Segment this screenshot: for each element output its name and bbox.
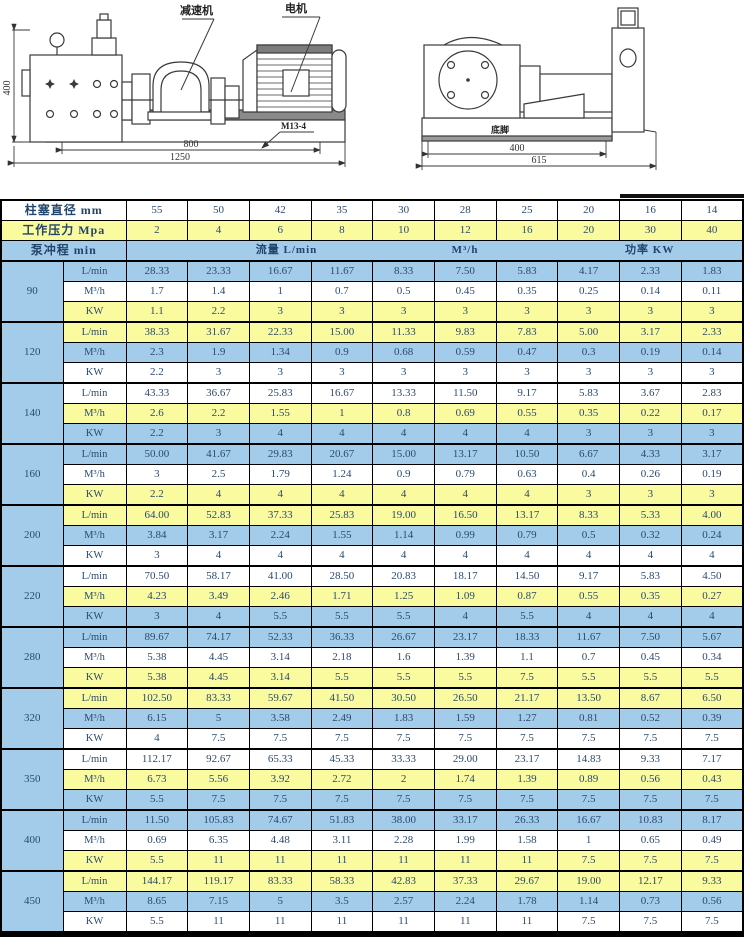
pressure-header-label: 工作压力 Mpa bbox=[1, 221, 126, 241]
value-cell: 1.6 bbox=[373, 648, 435, 668]
value-cell: 4.23 bbox=[126, 587, 188, 607]
value-cell: 7.5 bbox=[620, 912, 682, 935]
pressure-header-row: 工作压力 Mpa 2468101216203040 bbox=[1, 221, 743, 241]
pressure-value-cell: 20 bbox=[558, 221, 620, 241]
value-cell: 0.65 bbox=[620, 831, 682, 851]
value-cell: 3.11 bbox=[311, 831, 373, 851]
value-cell: 1.74 bbox=[434, 770, 496, 790]
table-row: 160L/min50.0041.6729.8320.6715.0013.1710… bbox=[1, 444, 743, 465]
value-cell: 6.15 bbox=[126, 709, 188, 729]
value-cell: 4 bbox=[681, 607, 743, 628]
value-cell: 15.00 bbox=[311, 322, 373, 343]
value-cell: 1.09 bbox=[434, 587, 496, 607]
value-cell: 11.67 bbox=[558, 627, 620, 648]
table-row: M³/h8.657.1553.52.572.241.781.140.730.56 bbox=[1, 892, 743, 912]
pressure-value-cell: 12 bbox=[434, 221, 496, 241]
value-cell: 4 bbox=[496, 424, 558, 445]
value-cell: 0.45 bbox=[620, 648, 682, 668]
value-cell: 0.39 bbox=[681, 709, 743, 729]
value-cell: 2.83 bbox=[681, 383, 743, 404]
value-cell: 11 bbox=[311, 912, 373, 935]
value-cell: 5.5 bbox=[126, 912, 188, 935]
value-cell: 0.27 bbox=[681, 587, 743, 607]
diameter-value-cell: 28 bbox=[434, 200, 496, 221]
value-cell: 2.46 bbox=[249, 587, 311, 607]
value-cell: 3 bbox=[496, 302, 558, 323]
row-unit-label: KW bbox=[63, 790, 126, 811]
value-cell: 11 bbox=[434, 912, 496, 935]
value-cell: 7.5 bbox=[434, 790, 496, 811]
value-cell: 2 bbox=[373, 770, 435, 790]
value-cell: 2.2 bbox=[126, 424, 188, 445]
row-unit-label: M³/h bbox=[63, 282, 126, 302]
dim-side-615: 615 bbox=[532, 155, 547, 166]
table-row: KW5.384.453.145.55.55.57.55.55.55.5 bbox=[1, 668, 743, 689]
table-row: M³/h0.696.354.483.112.281.991.5810.650.4… bbox=[1, 831, 743, 851]
value-cell: 7.5 bbox=[249, 790, 311, 811]
value-cell: 3.17 bbox=[620, 322, 682, 343]
value-cell: 0.7 bbox=[558, 648, 620, 668]
pressure-value-cell: 30 bbox=[620, 221, 682, 241]
value-cell: 3 bbox=[558, 363, 620, 384]
value-cell: 4.48 bbox=[249, 831, 311, 851]
value-cell: 11.50 bbox=[126, 810, 188, 831]
value-cell: 3 bbox=[681, 363, 743, 384]
value-cell: 83.33 bbox=[188, 688, 250, 709]
value-cell: 14.50 bbox=[496, 566, 558, 587]
value-cell: 7.5 bbox=[496, 729, 558, 750]
row-unit-label: M³/h bbox=[63, 526, 126, 546]
value-cell: 0.9 bbox=[311, 343, 373, 363]
value-cell: 26.33 bbox=[496, 810, 558, 831]
table-row: 220L/min70.5058.1741.0028.5020.8318.1714… bbox=[1, 566, 743, 587]
value-cell: 23.17 bbox=[496, 749, 558, 770]
value-cell: 3 bbox=[311, 302, 373, 323]
value-cell: 11 bbox=[496, 912, 558, 935]
value-cell: 29.00 bbox=[434, 749, 496, 770]
value-cell: 37.33 bbox=[434, 871, 496, 892]
value-cell: 22.33 bbox=[249, 322, 311, 343]
value-cell: 1.25 bbox=[373, 587, 435, 607]
pressure-value-cell: 16 bbox=[496, 221, 558, 241]
pressure-value-cell: 4 bbox=[188, 221, 250, 241]
value-cell: 16.67 bbox=[249, 261, 311, 282]
value-cell: 8.65 bbox=[126, 892, 188, 912]
value-cell: 4 bbox=[373, 485, 435, 506]
value-cell: 13.33 bbox=[373, 383, 435, 404]
pressure-value-cell: 2 bbox=[126, 221, 188, 241]
value-cell: 7.5 bbox=[434, 729, 496, 750]
value-cell: 3.5 bbox=[311, 892, 373, 912]
row-unit-label: L/min bbox=[63, 261, 126, 282]
value-cell: 0.32 bbox=[620, 526, 682, 546]
value-cell: 8.33 bbox=[373, 261, 435, 282]
value-cell: 42.83 bbox=[373, 871, 435, 892]
stroke-group-label: 320 bbox=[1, 688, 63, 749]
value-cell: 7.5 bbox=[681, 851, 743, 872]
value-cell: 0.56 bbox=[681, 892, 743, 912]
row-unit-label: L/min bbox=[63, 505, 126, 526]
value-cell: 0.52 bbox=[620, 709, 682, 729]
value-cell: 7.5 bbox=[249, 729, 311, 750]
row-unit-label: L/min bbox=[63, 871, 126, 892]
table-row: 400L/min11.50105.8374.6751.8338.0033.172… bbox=[1, 810, 743, 831]
value-cell: 7.5 bbox=[620, 790, 682, 811]
value-cell: 0.87 bbox=[496, 587, 558, 607]
diameter-value-cell: 20 bbox=[558, 200, 620, 221]
value-cell: 7.17 bbox=[681, 749, 743, 770]
power-label: 功率 KW bbox=[625, 241, 674, 260]
value-cell: 4.45 bbox=[188, 648, 250, 668]
value-cell: 4 bbox=[558, 607, 620, 628]
value-cell: 2.2 bbox=[126, 363, 188, 384]
value-cell: 5.00 bbox=[558, 322, 620, 343]
row-unit-label: L/min bbox=[63, 688, 126, 709]
value-cell: 4 bbox=[249, 485, 311, 506]
pump-side-view bbox=[422, 8, 644, 141]
value-cell: 5.5 bbox=[311, 607, 373, 628]
value-cell: 7.50 bbox=[434, 261, 496, 282]
value-cell: 4 bbox=[188, 546, 250, 567]
value-cell: 41.00 bbox=[249, 566, 311, 587]
value-cell: 4.45 bbox=[188, 668, 250, 689]
row-unit-label: L/min bbox=[63, 566, 126, 587]
value-cell: 4.33 bbox=[620, 444, 682, 465]
value-cell: 4 bbox=[311, 424, 373, 445]
value-cell: 8.67 bbox=[620, 688, 682, 709]
row-unit-label: L/min bbox=[63, 444, 126, 465]
diameter-value-cell: 50 bbox=[188, 200, 250, 221]
row-unit-label: KW bbox=[63, 546, 126, 567]
value-cell: 1.83 bbox=[681, 261, 743, 282]
value-cell: 43.33 bbox=[126, 383, 188, 404]
value-cell: 19.00 bbox=[558, 871, 620, 892]
table-row: KW345.55.55.545.5444 bbox=[1, 607, 743, 628]
value-cell: 11 bbox=[249, 912, 311, 935]
value-cell: 3 bbox=[188, 363, 250, 384]
value-cell: 23.17 bbox=[434, 627, 496, 648]
value-cell: 50.00 bbox=[126, 444, 188, 465]
value-cell: 38.33 bbox=[126, 322, 188, 343]
motor-label: 电机 bbox=[285, 1, 307, 15]
value-cell: 5.83 bbox=[496, 261, 558, 282]
value-cell: 0.56 bbox=[620, 770, 682, 790]
value-cell: 0.19 bbox=[620, 343, 682, 363]
row-unit-label: KW bbox=[63, 851, 126, 872]
diameter-value-cell: 25 bbox=[496, 200, 558, 221]
stroke-header-label: 泵冲程 min bbox=[1, 241, 126, 262]
value-cell: 4 bbox=[558, 546, 620, 567]
value-cell: 3.14 bbox=[249, 648, 311, 668]
value-cell: 2.49 bbox=[311, 709, 373, 729]
value-cell: 7.50 bbox=[620, 627, 682, 648]
table-row: 350L/min112.1792.6765.3345.3333.3329.002… bbox=[1, 749, 743, 770]
value-cell: 0.47 bbox=[496, 343, 558, 363]
value-cell: 7.5 bbox=[681, 729, 743, 750]
value-cell: 5.5 bbox=[373, 607, 435, 628]
value-cell: 11 bbox=[373, 851, 435, 872]
value-cell: 26.50 bbox=[434, 688, 496, 709]
value-cell: 1.55 bbox=[311, 526, 373, 546]
value-cell: 2.24 bbox=[249, 526, 311, 546]
value-cell: 5 bbox=[249, 892, 311, 912]
value-cell: 5.5 bbox=[558, 668, 620, 689]
value-cell: 9.17 bbox=[496, 383, 558, 404]
value-cell: 3.17 bbox=[681, 444, 743, 465]
value-cell: 7.5 bbox=[188, 729, 250, 750]
value-cell: 0.79 bbox=[434, 465, 496, 485]
value-cell: 28.50 bbox=[311, 566, 373, 587]
row-unit-label: KW bbox=[63, 607, 126, 628]
value-cell: 9.83 bbox=[434, 322, 496, 343]
diameter-value-cell: 42 bbox=[249, 200, 311, 221]
row-unit-label: M³/h bbox=[63, 831, 126, 851]
value-cell: 2.18 bbox=[311, 648, 373, 668]
flow-m3h-label: M³/h bbox=[452, 241, 479, 260]
value-cell: 4 bbox=[496, 546, 558, 567]
value-cell: 0.73 bbox=[620, 892, 682, 912]
value-cell: 31.67 bbox=[188, 322, 250, 343]
value-cell: 3 bbox=[311, 363, 373, 384]
row-unit-label: M³/h bbox=[63, 587, 126, 607]
value-cell: 0.35 bbox=[496, 282, 558, 302]
reducer-label: 减速机 bbox=[180, 3, 213, 17]
value-cell: 11.50 bbox=[434, 383, 496, 404]
value-cell: 0.49 bbox=[681, 831, 743, 851]
value-cell: 1.34 bbox=[249, 343, 311, 363]
row-unit-label: L/min bbox=[63, 810, 126, 831]
spec-table-body: 90L/min28.3323.3316.6711.678.337.505.834… bbox=[1, 261, 743, 934]
value-cell: 4 bbox=[249, 546, 311, 567]
value-cell: 7.5 bbox=[496, 790, 558, 811]
value-cell: 8.17 bbox=[681, 810, 743, 831]
value-cell: 4 bbox=[620, 607, 682, 628]
value-cell: 1.14 bbox=[558, 892, 620, 912]
row-unit-label: L/min bbox=[63, 749, 126, 770]
table-row: M³/h32.51.791.240.90.790.630.40.260.19 bbox=[1, 465, 743, 485]
dim-base-800: 800 bbox=[184, 139, 199, 150]
value-cell: 4 bbox=[434, 424, 496, 445]
diameter-value-cell: 35 bbox=[311, 200, 373, 221]
value-cell: 2.2 bbox=[188, 404, 250, 424]
value-cell: 4 bbox=[620, 546, 682, 567]
value-cell: 5.56 bbox=[188, 770, 250, 790]
value-cell: 2.5 bbox=[188, 465, 250, 485]
value-cell: 13.17 bbox=[434, 444, 496, 465]
value-cell: 3 bbox=[434, 363, 496, 384]
value-cell: 4.50 bbox=[681, 566, 743, 587]
value-cell: 59.67 bbox=[249, 688, 311, 709]
value-cell: 3 bbox=[681, 302, 743, 323]
table-row: KW5.51111111111117.57.57.5 bbox=[1, 851, 743, 872]
value-cell: 5.5 bbox=[249, 607, 311, 628]
value-cell: 37.33 bbox=[249, 505, 311, 526]
pressure-value-cell: 6 bbox=[249, 221, 311, 241]
value-cell: 144.17 bbox=[126, 871, 188, 892]
value-cell: 41.67 bbox=[188, 444, 250, 465]
value-cell: 3 bbox=[620, 302, 682, 323]
value-cell: 7.5 bbox=[373, 729, 435, 750]
value-cell: 10.83 bbox=[620, 810, 682, 831]
value-cell: 7.5 bbox=[558, 729, 620, 750]
value-cell: 5.83 bbox=[620, 566, 682, 587]
table-row: M³/h2.31.91.340.90.680.590.470.30.190.14 bbox=[1, 343, 743, 363]
row-unit-label: L/min bbox=[63, 322, 126, 343]
value-cell: 8.33 bbox=[558, 505, 620, 526]
value-cell: 7.5 bbox=[681, 790, 743, 811]
units-band-cell: 流量 L/min M³/h 功率 KW bbox=[126, 241, 743, 262]
value-cell: 38.00 bbox=[373, 810, 435, 831]
value-cell: 0.9 bbox=[373, 465, 435, 485]
value-cell: 10.50 bbox=[496, 444, 558, 465]
value-cell: 9.33 bbox=[620, 749, 682, 770]
value-cell: 7.5 bbox=[558, 790, 620, 811]
value-cell: 92.67 bbox=[188, 749, 250, 770]
value-cell: 29.67 bbox=[496, 871, 558, 892]
table-row: M³/h6.1553.582.491.831.591.270.810.520.3… bbox=[1, 709, 743, 729]
value-cell: 1 bbox=[249, 282, 311, 302]
value-cell: 2.33 bbox=[620, 261, 682, 282]
value-cell: 4 bbox=[188, 485, 250, 506]
dim-total-1250: 1250 bbox=[170, 152, 190, 163]
pressure-value-cell: 10 bbox=[373, 221, 435, 241]
value-cell: 1.71 bbox=[311, 587, 373, 607]
value-cell: 4 bbox=[434, 546, 496, 567]
table-row: KW2.2344444333 bbox=[1, 424, 743, 445]
value-cell: 7.5 bbox=[620, 851, 682, 872]
value-cell: 0.89 bbox=[558, 770, 620, 790]
value-cell: 7.5 bbox=[558, 851, 620, 872]
value-cell: 16.67 bbox=[558, 810, 620, 831]
value-cell: 1.4 bbox=[188, 282, 250, 302]
value-cell: 1 bbox=[558, 831, 620, 851]
value-cell: 1.58 bbox=[496, 831, 558, 851]
value-cell: 3 bbox=[620, 424, 682, 445]
value-cell: 52.33 bbox=[249, 627, 311, 648]
value-cell: 3 bbox=[434, 302, 496, 323]
value-cell: 0.14 bbox=[620, 282, 682, 302]
value-cell: 3.17 bbox=[188, 526, 250, 546]
value-cell: 4 bbox=[126, 729, 188, 750]
value-cell: 3.92 bbox=[249, 770, 311, 790]
table-row: 120L/min38.3331.6722.3315.0011.339.837.8… bbox=[1, 322, 743, 343]
value-cell: 3 bbox=[496, 363, 558, 384]
value-cell: 5.5 bbox=[311, 668, 373, 689]
value-cell: 5.5 bbox=[434, 668, 496, 689]
foot-label: 底脚 bbox=[491, 124, 509, 135]
value-cell: 64.00 bbox=[126, 505, 188, 526]
value-cell: 11 bbox=[496, 851, 558, 872]
row-unit-label: M³/h bbox=[63, 892, 126, 912]
value-cell: 3 bbox=[249, 363, 311, 384]
value-cell: 3.58 bbox=[249, 709, 311, 729]
value-cell: 36.67 bbox=[188, 383, 250, 404]
value-cell: 19.00 bbox=[373, 505, 435, 526]
row-unit-label: L/min bbox=[63, 383, 126, 404]
row-unit-label: KW bbox=[63, 424, 126, 445]
value-cell: 1.59 bbox=[434, 709, 496, 729]
scan-artifact-line bbox=[620, 194, 744, 198]
value-cell: 5.67 bbox=[681, 627, 743, 648]
value-cell: 1.9 bbox=[188, 343, 250, 363]
value-cell: 74.67 bbox=[249, 810, 311, 831]
value-cell: 18.33 bbox=[496, 627, 558, 648]
table-row: 200L/min64.0052.8337.3325.8319.0016.5013… bbox=[1, 505, 743, 526]
table-row: KW3444444444 bbox=[1, 546, 743, 567]
value-cell: 1.39 bbox=[496, 770, 558, 790]
value-cell: 3 bbox=[373, 302, 435, 323]
value-cell: 70.50 bbox=[126, 566, 188, 587]
value-cell: 11 bbox=[188, 851, 250, 872]
value-cell: 1.55 bbox=[249, 404, 311, 424]
value-cell: 1.1 bbox=[496, 648, 558, 668]
value-cell: 4 bbox=[311, 485, 373, 506]
value-cell: 105.83 bbox=[188, 810, 250, 831]
value-cell: 11 bbox=[311, 851, 373, 872]
value-cell: 0.11 bbox=[681, 282, 743, 302]
value-cell: 30.50 bbox=[373, 688, 435, 709]
value-cell: 1.27 bbox=[496, 709, 558, 729]
table-row: KW2.2444444333 bbox=[1, 485, 743, 506]
value-cell: 20.67 bbox=[311, 444, 373, 465]
value-cell: 7.5 bbox=[311, 729, 373, 750]
pump-technical-drawing: 减速机 电机 M13-4 400 800 1250 底脚 bbox=[0, 0, 744, 199]
value-cell: 3 bbox=[681, 424, 743, 445]
row-unit-label: M³/h bbox=[63, 709, 126, 729]
table-row: M³/h2.62.21.5510.80.690.550.350.220.17 bbox=[1, 404, 743, 424]
table-row: KW1.12.233333333 bbox=[1, 302, 743, 323]
value-cell: 5.5 bbox=[126, 790, 188, 811]
value-cell: 0.34 bbox=[681, 648, 743, 668]
value-cell: 0.19 bbox=[681, 465, 743, 485]
value-cell: 7.5 bbox=[496, 668, 558, 689]
value-cell: 1.79 bbox=[249, 465, 311, 485]
stroke-group-label: 280 bbox=[1, 627, 63, 688]
row-unit-label: L/min bbox=[63, 627, 126, 648]
value-cell: 14.83 bbox=[558, 749, 620, 770]
value-cell: 7.15 bbox=[188, 892, 250, 912]
row-unit-label: KW bbox=[63, 912, 126, 935]
value-cell: 41.50 bbox=[311, 688, 373, 709]
value-cell: 3 bbox=[558, 424, 620, 445]
value-cell: 1.99 bbox=[434, 831, 496, 851]
value-cell: 0.99 bbox=[434, 526, 496, 546]
value-cell: 0.63 bbox=[496, 465, 558, 485]
value-cell: 4 bbox=[311, 546, 373, 567]
value-cell: 4 bbox=[373, 546, 435, 567]
value-cell: 0.69 bbox=[126, 831, 188, 851]
value-cell: 0.3 bbox=[558, 343, 620, 363]
value-cell: 7.83 bbox=[496, 322, 558, 343]
value-cell: 33.33 bbox=[373, 749, 435, 770]
stroke-group-label: 220 bbox=[1, 566, 63, 627]
value-cell: 1.1 bbox=[126, 302, 188, 323]
value-cell: 5.33 bbox=[620, 505, 682, 526]
value-cell: 3 bbox=[620, 485, 682, 506]
value-cell: 2.3 bbox=[126, 343, 188, 363]
row-unit-label: M³/h bbox=[63, 465, 126, 485]
table-row: KW5.57.57.57.57.57.57.57.57.57.5 bbox=[1, 790, 743, 811]
value-cell: 0.81 bbox=[558, 709, 620, 729]
table-row: M³/h6.735.563.922.7221.741.390.890.560.4… bbox=[1, 770, 743, 790]
value-cell: 16.50 bbox=[434, 505, 496, 526]
units-header-row: 泵冲程 min 流量 L/min M³/h 功率 KW bbox=[1, 241, 743, 262]
table-row: M³/h1.71.410.70.50.450.350.250.140.11 bbox=[1, 282, 743, 302]
value-cell: 0.69 bbox=[434, 404, 496, 424]
row-unit-label: M³/h bbox=[63, 404, 126, 424]
value-cell: 3 bbox=[188, 424, 250, 445]
value-cell: 13.50 bbox=[558, 688, 620, 709]
